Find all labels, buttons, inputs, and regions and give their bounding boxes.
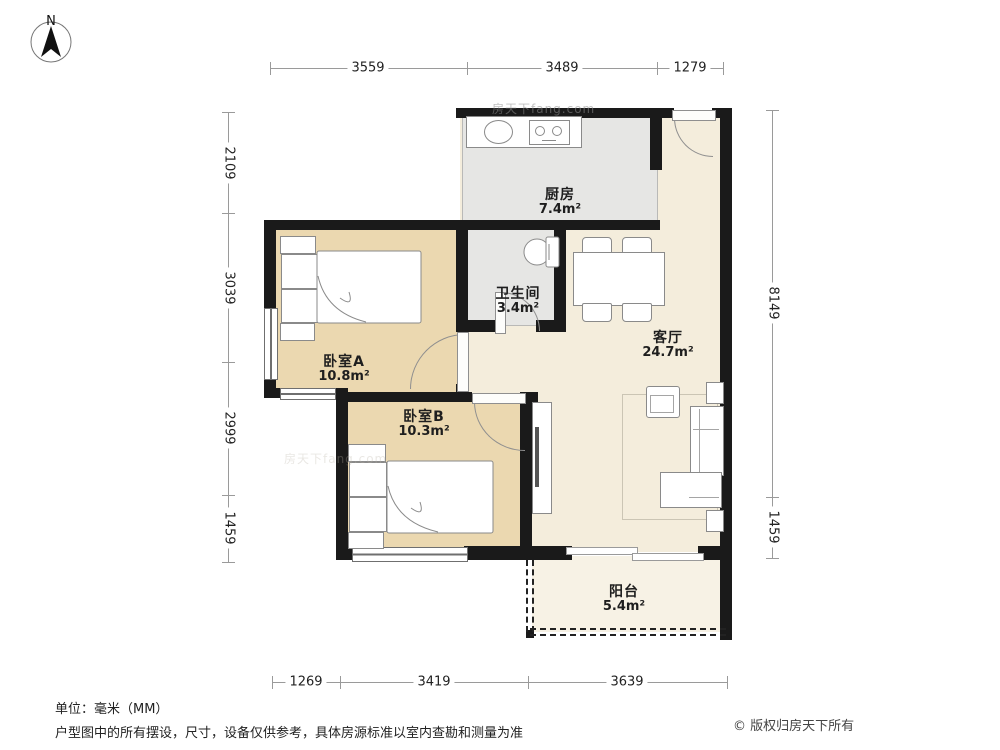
- wall-segment: [336, 392, 348, 560]
- toilet-icon: [522, 236, 562, 268]
- wardrobe-icon: [281, 289, 318, 323]
- window: [280, 388, 336, 400]
- balcony-dashed-wall: [526, 560, 534, 632]
- bed-icon: [386, 460, 494, 534]
- stove-icon: [529, 120, 570, 145]
- dim-label: 8149: [766, 282, 781, 323]
- compass-n-label: N: [46, 14, 56, 29]
- wall-segment: [338, 392, 472, 402]
- wall-segment: [456, 320, 498, 332]
- dim-tick: [270, 62, 271, 75]
- chair-icon: [622, 303, 652, 322]
- room-area: 24.7m²: [642, 346, 693, 361]
- room-area: 3.4m²: [496, 302, 541, 317]
- entry-door-leaf: [672, 110, 716, 121]
- dim-label: 1269: [285, 675, 326, 690]
- wall-segment: [650, 112, 662, 170]
- dim-label: 3639: [606, 675, 647, 690]
- room-name: 厨房: [539, 187, 581, 203]
- side-table-icon: [706, 382, 724, 404]
- dim-label: 3559: [347, 61, 388, 76]
- room-label-kitchen: 厨房 7.4m²: [539, 187, 581, 218]
- room-label-bedroom-a: 卧室A 10.8m²: [318, 354, 369, 385]
- footer-copyright: © 版权归房天下所有: [733, 715, 854, 734]
- wardrobe-icon: [281, 254, 318, 289]
- room-name: 卧室A: [318, 354, 369, 370]
- room-area: 10.8m²: [318, 370, 369, 385]
- wardrobe-icon: [348, 532, 384, 549]
- room-area: 10.3m²: [398, 425, 449, 440]
- dim-label: 1459: [222, 507, 237, 548]
- room-label-balcony: 阳台 5.4m²: [603, 584, 645, 615]
- dim-tick: [727, 676, 728, 689]
- dim-tick: [766, 558, 779, 559]
- room-area: 5.4m²: [603, 600, 645, 615]
- bed-icon: [316, 250, 422, 324]
- dim-tick: [528, 676, 529, 689]
- dim-tick: [222, 495, 235, 496]
- dim-label: 3039: [222, 267, 237, 308]
- wall-segment: [264, 220, 276, 310]
- dim-tick: [222, 562, 235, 563]
- wardrobe-icon: [349, 497, 387, 532]
- dim-line-top: [270, 68, 723, 69]
- wardrobe-icon: [280, 323, 315, 341]
- sliding-door: [566, 547, 638, 555]
- room-name: 卧室B: [398, 409, 449, 425]
- armchair-icon: [646, 386, 680, 418]
- wall-segment: [720, 108, 732, 640]
- chair-icon: [582, 303, 612, 322]
- room-label-bathroom: 卫生间 3.4m²: [496, 286, 541, 317]
- dim-tick: [657, 62, 658, 75]
- sliding-door: [632, 553, 704, 561]
- balcony-dashed-wall: [530, 628, 726, 636]
- dim-label: 3419: [413, 675, 454, 690]
- room-name: 阳台: [603, 584, 645, 600]
- dim-tick: [340, 676, 341, 689]
- tv-cabinet-icon: [532, 402, 552, 514]
- dining-table-icon: [573, 252, 665, 306]
- dim-tick: [222, 362, 235, 363]
- dim-tick: [723, 62, 724, 75]
- dim-tick: [272, 676, 273, 689]
- wall-segment: [464, 546, 572, 560]
- room-label-bedroom-b: 卧室B 10.3m²: [398, 409, 449, 440]
- room-name: 客厅: [642, 330, 693, 346]
- dim-tick: [467, 62, 468, 75]
- window: [352, 547, 468, 562]
- room-name: 卫生间: [496, 286, 541, 302]
- wardrobe-icon: [349, 462, 387, 497]
- wall-segment: [456, 220, 468, 332]
- dim-label: 2109: [222, 142, 237, 183]
- sofa-chaise-icon: [660, 472, 722, 508]
- watermark: 房天下fang.com: [284, 450, 387, 467]
- dim-label: 1279: [669, 61, 710, 76]
- watermark: 房天下fang.com: [492, 100, 595, 117]
- window: [264, 308, 278, 380]
- room-label-living: 客厅 24.7m²: [642, 330, 693, 361]
- bedroom-b-door-leaf: [472, 393, 526, 404]
- dim-tick: [766, 110, 779, 111]
- dim-tick: [766, 497, 779, 498]
- dim-label: 1459: [766, 506, 781, 547]
- dim-tick: [222, 213, 235, 214]
- footer-disclaimer: 户型图中的所有摆设，尺寸，设备仅供参考，具体房源标准以室内查勘和测量为准: [55, 722, 523, 741]
- room-area: 7.4m²: [539, 203, 581, 218]
- wardrobe-icon: [280, 236, 316, 254]
- north-arrow-icon: N: [26, 10, 78, 68]
- side-table-icon: [706, 510, 724, 532]
- dim-line-right: [772, 110, 773, 558]
- footer-unit: 单位：毫米（MM）: [55, 698, 168, 717]
- dim-label: 3489: [541, 61, 582, 76]
- dim-tick: [222, 112, 235, 113]
- sink-icon: [484, 120, 513, 144]
- sofa-icon: [690, 406, 724, 476]
- dim-label: 2999: [222, 407, 237, 448]
- bedroom-a-door-leaf: [457, 332, 469, 392]
- floor-plan: N: [0, 0, 1000, 750]
